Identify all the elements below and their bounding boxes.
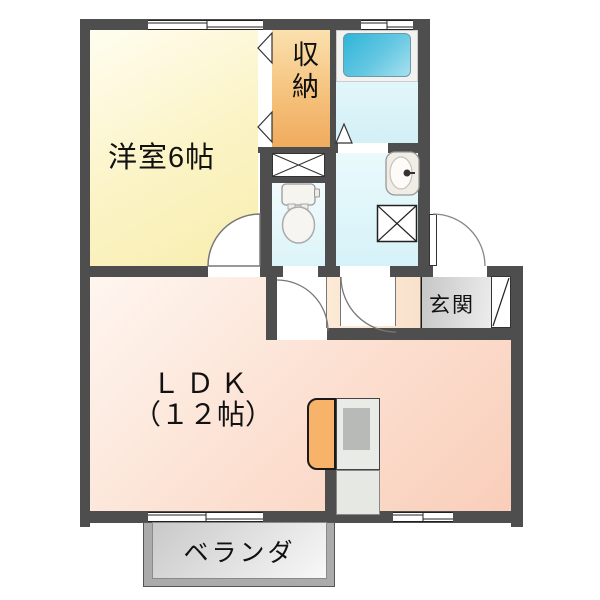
window-ldk-right xyxy=(393,512,453,522)
wall-toilet-left xyxy=(260,147,272,266)
room-washroom xyxy=(336,153,418,266)
wall-right-lower xyxy=(511,266,523,527)
room-toilet xyxy=(272,183,325,266)
veranda-label: ベランダ xyxy=(183,533,295,569)
floor-plan: ベランダ xyxy=(0,0,600,600)
door-swing-area-ldk xyxy=(274,277,327,328)
entrance-door-leaf xyxy=(429,214,437,266)
doorway-entrance xyxy=(433,266,487,277)
window-ldk-left xyxy=(148,512,263,522)
kitchen-base-cabinet xyxy=(336,470,380,515)
opening-hallway-ldk xyxy=(275,328,327,340)
doorway-washroom xyxy=(340,266,390,277)
doorway-bathroom xyxy=(338,143,388,153)
entrance-door-icon xyxy=(433,214,485,266)
kitchen-counter-icon xyxy=(307,398,336,470)
wall-kitchen-stub xyxy=(325,470,336,515)
storage-x-box xyxy=(272,153,325,177)
stove-top-icon xyxy=(343,408,370,450)
ldk-label-line2: （１２帖） xyxy=(108,399,298,430)
entrance-label: 玄関 xyxy=(429,289,475,319)
window-bathroom xyxy=(361,20,413,30)
wall-xbox-bottom xyxy=(272,177,325,183)
wall-toilet-right xyxy=(325,147,336,266)
wall-stub-vertical xyxy=(266,266,277,340)
doorway-toilet xyxy=(283,266,318,277)
western-room-label: 洋室6帖 xyxy=(108,134,215,176)
ldk-label-line1: ＬＤＫ xyxy=(108,368,298,399)
closet-door-strip xyxy=(258,30,272,147)
window-western xyxy=(148,20,263,30)
room-bathroom xyxy=(336,82,418,143)
wall-storage-right xyxy=(330,30,336,147)
doorway-western xyxy=(208,266,260,277)
door-swing-area-washroom xyxy=(340,277,396,326)
shoe-cabinet xyxy=(491,276,511,328)
veranda-floor: ベランダ xyxy=(152,522,327,579)
ldk-label: ＬＤＫ （１２帖） xyxy=(108,368,298,431)
bathtub-icon xyxy=(343,33,411,77)
storage-label: 収納 xyxy=(284,40,323,104)
